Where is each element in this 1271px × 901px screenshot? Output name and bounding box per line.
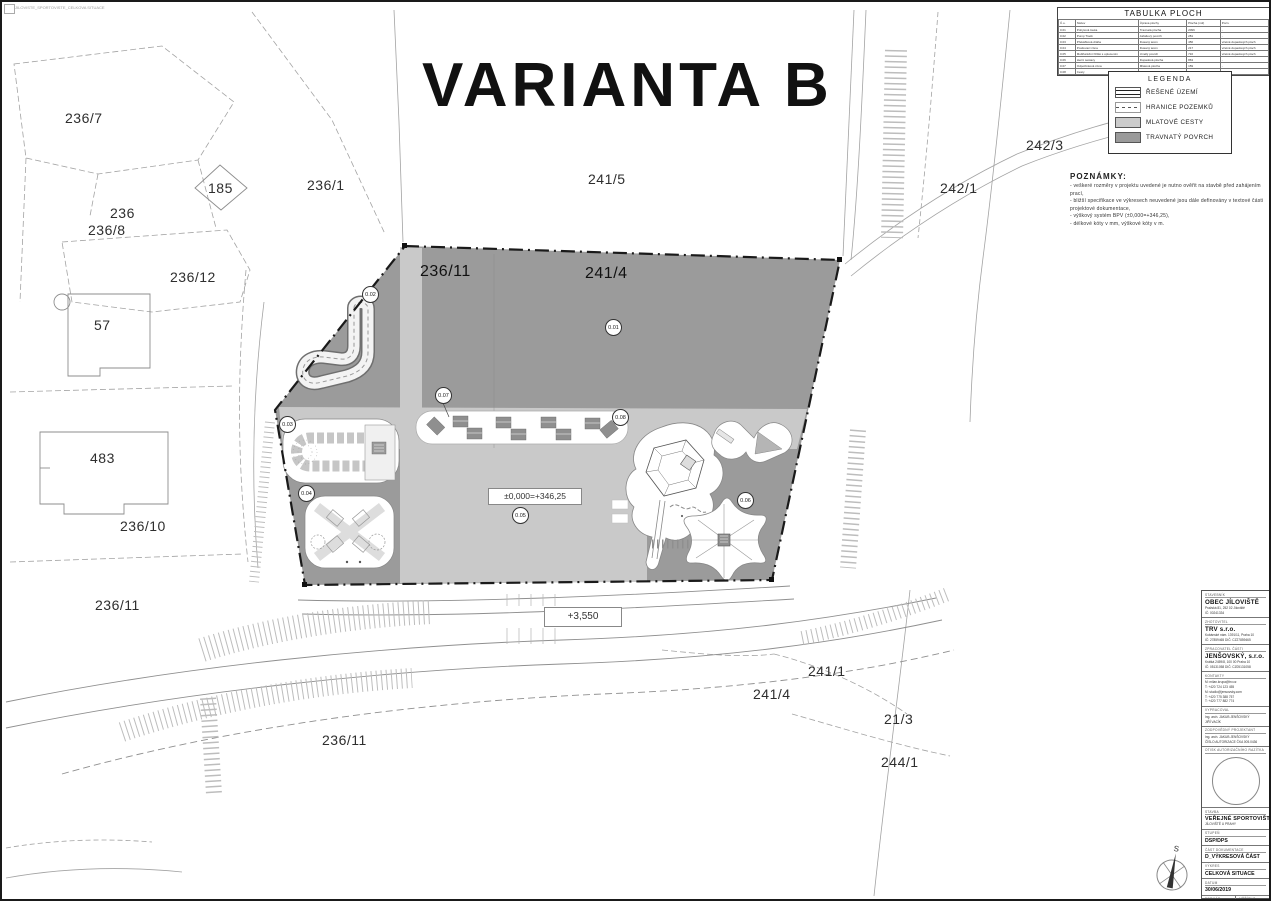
legend: LEGENDA ŘEŠENÉ ÚZEMÍ HRANICE POZEMKŮ MLA…	[1108, 71, 1232, 154]
area-marker: 0.04	[298, 485, 315, 502]
parcel-label: 241/4	[585, 265, 628, 283]
area-marker: 0.06	[737, 492, 754, 509]
legend-items: ŘEŠENÉ ÚZEMÍ HRANICE POZEMKŮ MLATOVÉ CES…	[1115, 87, 1225, 143]
area-table-title: TABULKA PLOCH	[1058, 8, 1269, 19]
col-header: Úprava plochy	[1138, 20, 1186, 27]
tb-zhotovitel: ZHOTOVITEL TRV s.r.o. Kubánské nám. 1391…	[1202, 618, 1269, 645]
parcel-label: 236/12	[170, 269, 216, 285]
tb-kontakty: KONTAKTY M: milan.krupa@trv.cz T: +420 7…	[1202, 672, 1269, 706]
tb-vykres: VÝKRES CELKOVÁ SITUACE	[1202, 863, 1269, 880]
legend-item-label: MLATOVÉ CESTY	[1146, 119, 1203, 126]
col-header: Č.o.	[1059, 20, 1076, 27]
plot-stamp: JILOVISTE_SPORTOVISTE_CELKOVA SITUACE	[15, 5, 105, 10]
obstacle-track	[283, 419, 399, 483]
col-header: Pozn.	[1220, 20, 1268, 27]
area-marker: 0.03	[279, 416, 296, 433]
col-header: Plocha (m2)	[1187, 20, 1221, 27]
parcel-label: 244/1	[881, 754, 919, 770]
area-marker: 0.07	[435, 387, 452, 404]
legend-item-label: TRAVNATÝ POVRCH	[1146, 134, 1213, 141]
area-marker: 0.02	[362, 286, 379, 303]
drawing-sheet: S JILOVISTE_SPORTOVISTE_CELKOVA SITUACE …	[0, 0, 1271, 901]
road-lines	[6, 586, 954, 774]
tb-stavba: STAVBA VEŘEJNÉ SPORTOVIŠTĚ JÍLOVIŠTĚ U P…	[1202, 808, 1269, 829]
legend-item-label: HRANICE POZEMKŮ	[1146, 104, 1213, 111]
parcel-label: 236/8	[88, 222, 126, 238]
tb-datum: DATUM 30/06/2019	[1202, 879, 1269, 896]
area-table: TABULKA PLOCH Č.o. Název Úprava plochy P…	[1057, 7, 1270, 76]
trim-mark	[4, 4, 15, 14]
building-57	[68, 294, 150, 376]
height-annotation: +3,550	[544, 607, 622, 627]
notes: POZNÁMKY: - veškeré rozměry v projektu u…	[1070, 172, 1270, 228]
tb-zodpovedny: ZODPOVĚDNÝ PROJEKTANT Ing. arch. JAKUB J…	[1202, 727, 1269, 747]
legend-swatch	[1115, 117, 1141, 128]
parcel-label: 21/3	[884, 711, 913, 727]
tb-zpracovatel: ZPRACOVATEL ČÁSTI JENŠOVSKÝ, s.r.o. Krát…	[1202, 645, 1269, 672]
col-header: Název	[1075, 20, 1138, 27]
parcel-label: 242/3	[1026, 137, 1064, 153]
area-marker: 0.08	[612, 409, 629, 426]
tb-razitko: OTISK AUTORIZAČNÍHO RAZÍTKA	[1202, 747, 1269, 809]
note-line: - délkové kóty v mm, výškové kóty v m.	[1070, 221, 1270, 229]
legend-item: TRAVNATÝ POVRCH	[1115, 132, 1225, 143]
legend-swatch	[1115, 87, 1141, 98]
parcel-label: 236/7	[65, 110, 103, 126]
playground	[305, 496, 394, 568]
legend-swatch	[1115, 132, 1141, 143]
tb-format-meritko: FORMÁT A0 (841×1189) MĚŘÍTKO 1:250	[1202, 896, 1269, 901]
notes-title: POZNÁMKY:	[1070, 172, 1270, 181]
site-plan-drawing: S	[2, 2, 1271, 901]
area-marker: 0.01	[605, 319, 622, 336]
tb-vypracoval: VYPRACOVAL Ing. arch. JAKUB JENŠOVSKÝ JI…	[1202, 707, 1269, 727]
parcel-label: 236/11	[420, 263, 471, 281]
parcel-label: 236/11	[95, 597, 140, 613]
legend-title: LEGENDA	[1115, 76, 1225, 83]
building-483	[40, 432, 168, 514]
parcel-label: 241/1	[808, 663, 846, 679]
legend-item-label: ŘEŠENÉ ÚZEMÍ	[1146, 89, 1198, 96]
legend-item: HRANICE POZEMKŮ	[1115, 102, 1225, 113]
stamp-circle	[1212, 757, 1260, 805]
north-letter: S	[1173, 844, 1180, 854]
note-line: - výškový systém BPV (±0,000=+346,25),	[1070, 213, 1270, 221]
tb-cast: ČÁST DOKUMENTACE D_VÝKRESOVÁ ČÁST	[1202, 846, 1269, 863]
legend-item: ŘEŠENÉ ÚZEMÍ	[1115, 87, 1225, 98]
north-arrow: S	[1155, 842, 1193, 893]
title-block: STAVEBNÍK OBEC JÍLOVIŠTĚ Pražská 81, 252…	[1201, 590, 1270, 899]
note-line: - veškeré rozměry v projektu uvedené je …	[1070, 183, 1270, 198]
parcel-label: 236	[110, 205, 135, 221]
parcel-label: 57	[94, 317, 111, 333]
building-outlines	[40, 165, 247, 514]
area-table-body: 0.01 Pobytová louka Travnatá plocha 2096…	[1059, 27, 1269, 75]
parcel-label: 236/11	[322, 732, 367, 748]
parcel-label: 241/4	[753, 686, 791, 702]
level-annotation: ±0,000=+346,25	[488, 488, 582, 505]
page-title: VARIANTA B	[422, 50, 832, 121]
legend-swatch	[1115, 102, 1141, 113]
tb-stavebnik: STAVEBNÍK OBEC JÍLOVIŠTĚ Pražská 81, 252…	[1202, 591, 1269, 618]
parcel-label: 236/10	[120, 518, 166, 534]
parcel-label: 241/5	[588, 171, 626, 187]
area-marker: 0.05	[512, 507, 529, 524]
parcel-label: 242/1	[940, 180, 978, 196]
parcel-label: 483	[90, 450, 115, 466]
note-line: - bližší specifikace ve výkresech neuved…	[1070, 198, 1270, 213]
legend-item: MLATOVÉ CESTY	[1115, 117, 1225, 128]
parcel-label: 185	[208, 180, 233, 196]
tb-stupen: STUPEŇ DSP/DPS	[1202, 830, 1269, 847]
notes-list: - veškeré rozměry v projektu uvedené je …	[1070, 183, 1270, 228]
parcel-label: 236/1	[307, 177, 345, 193]
